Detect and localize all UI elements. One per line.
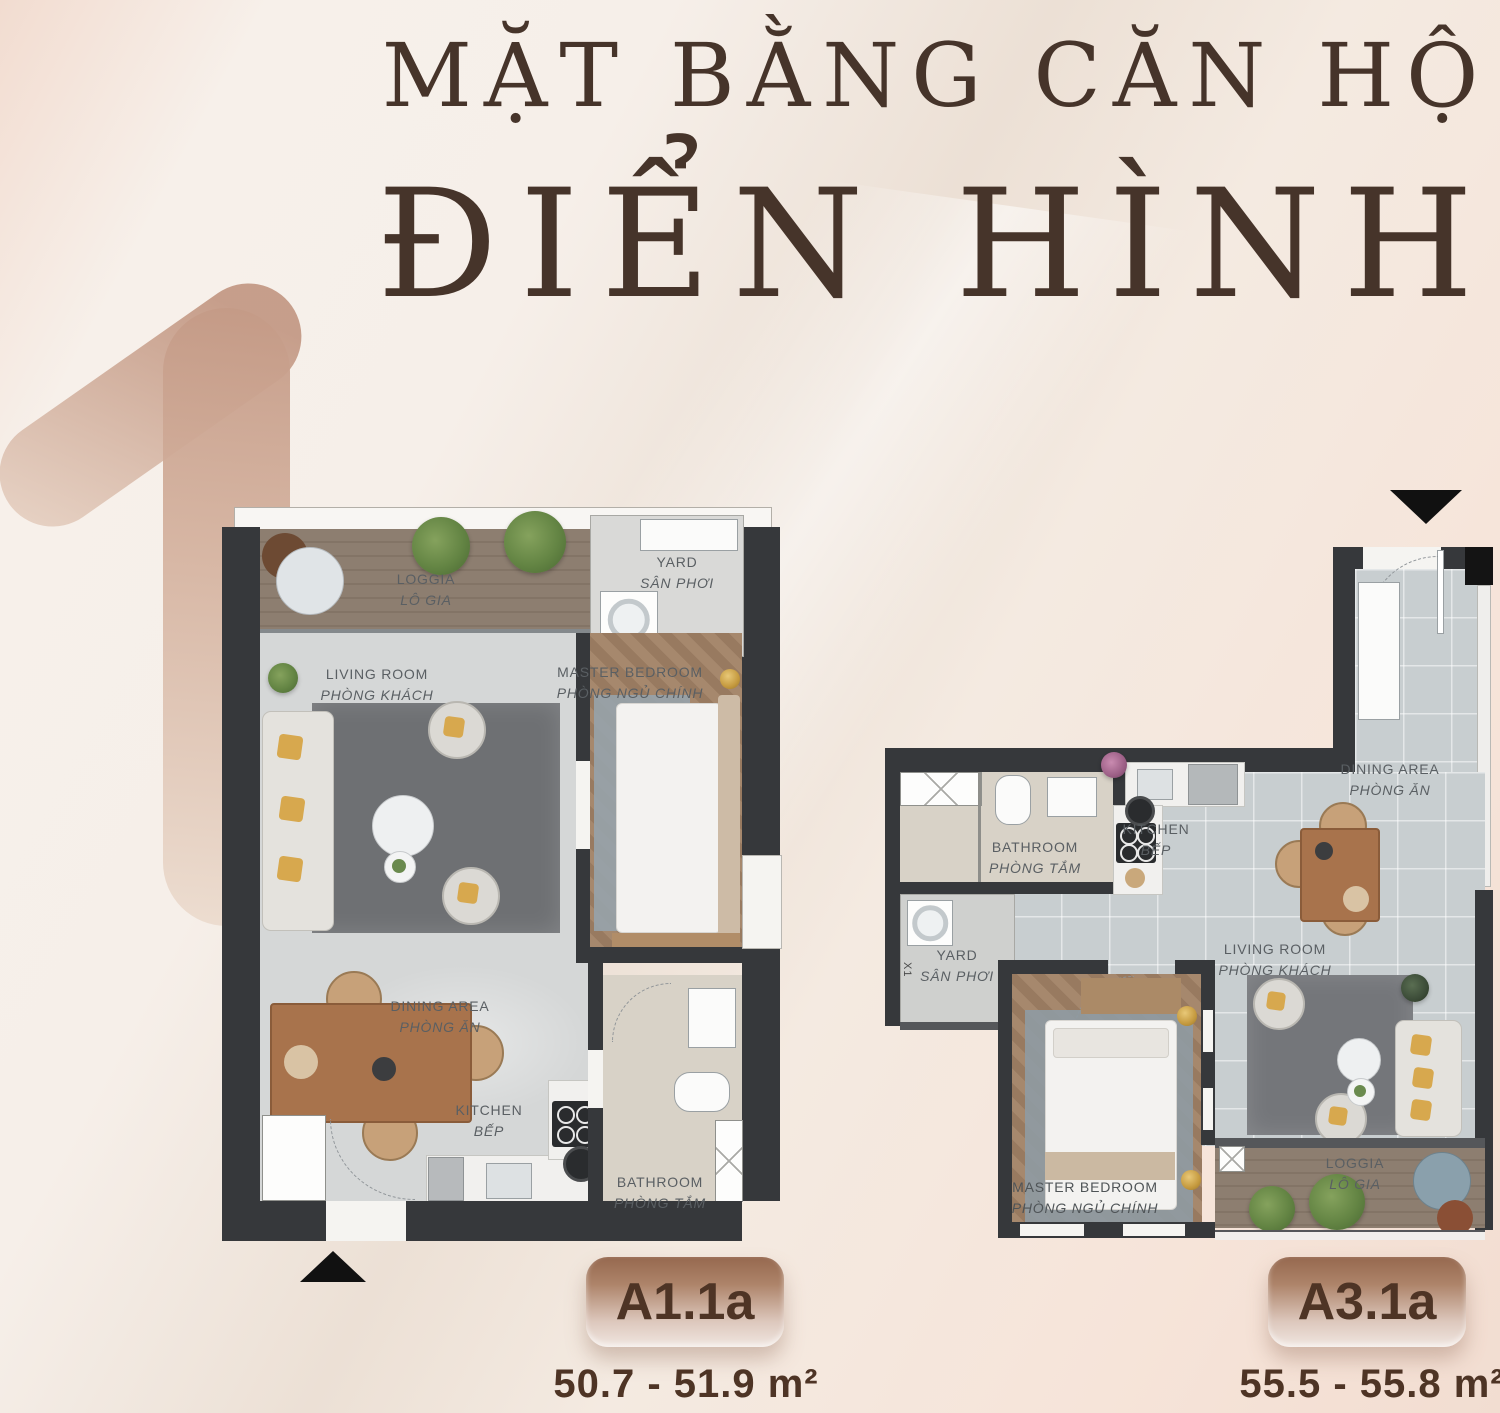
window-right	[742, 855, 782, 949]
room-label-loggia: LOGGIALÔ GIA	[1326, 1153, 1384, 1195]
room-label-kitchen: KITCHENBẾP	[455, 1100, 522, 1142]
plate-icon	[1125, 868, 1145, 888]
room-label-loggia: LOGGIALÔ GIA	[397, 569, 455, 611]
room-label-yard: YARDSÂN PHƠI	[920, 945, 994, 987]
left-wall	[885, 748, 900, 1026]
toilet-icon	[674, 1072, 730, 1112]
bed-throw	[1045, 1152, 1175, 1180]
loggia-round-table	[276, 547, 344, 615]
bathroom-closet	[715, 1120, 743, 1202]
armchair-cushion	[1266, 991, 1286, 1011]
bed-pillows	[1053, 1028, 1169, 1058]
bathroom-sink	[688, 988, 736, 1048]
bottom-window	[1123, 1224, 1185, 1236]
nightstand-lamp-icon	[1181, 1170, 1201, 1190]
flower-vase-icon	[1101, 752, 1127, 778]
poster-title-line1: MẶT BẰNG CĂN HỘ	[375, 20, 1497, 133]
bottom-window	[1020, 1224, 1084, 1236]
room-label-master-bedroom: MASTER BEDROOMPHÒNG NGỦ CHÍNH	[557, 662, 704, 704]
floor-plan-a31a: X1	[885, 490, 1493, 1248]
loggia-rail	[1215, 1230, 1485, 1240]
dining-bowl	[372, 1057, 396, 1081]
room-label-yard: YARDSÂN PHƠI	[640, 552, 714, 594]
room-label-living-room: LIVING ROOMPHÒNG KHÁCH	[1218, 939, 1331, 981]
armchair-cushion	[1328, 1106, 1348, 1126]
yard-bottom-edge	[900, 1022, 1013, 1030]
armchair-cushion	[443, 716, 466, 739]
table-plant-icon	[1354, 1085, 1366, 1097]
dishwasher	[428, 1157, 464, 1201]
ac-ledge-box	[1219, 1146, 1245, 1172]
unit-badge-a31a: A3.1a	[1268, 1257, 1466, 1347]
dining-bowl	[1315, 842, 1333, 860]
loggia-plant-icon	[412, 517, 470, 575]
nightstand-lamp-icon	[720, 669, 740, 689]
sofa-pillow	[1410, 1099, 1433, 1122]
toilet-icon	[995, 775, 1031, 825]
entry-arrow-down	[1390, 490, 1462, 524]
dining-plate	[1343, 886, 1369, 912]
bedroom-door-gap	[576, 761, 590, 849]
sofa-pillow	[278, 795, 305, 822]
floor-plan-a11a: LOGGIALÔ GIA YARDSÂN PHƠI LIVING ROOMPHÒ…	[222, 505, 780, 1247]
sofa-pillow	[1412, 1067, 1435, 1090]
room-label-kitchen: KITCHENBẾP	[1122, 819, 1189, 861]
corner-plant-icon	[1401, 974, 1429, 1002]
sofa-pillow	[276, 733, 303, 760]
room-label-living-room: LIVING ROOMPHÒNG KHÁCH	[320, 664, 433, 706]
room-label-master-bedroom: MASTER BEDROOMPHÒNG NGỦ CHÍNH	[1012, 1177, 1159, 1219]
room-label-bathroom: BATHROOMPHÒNG TẮM	[614, 1172, 706, 1214]
bedroom-top-wall	[998, 960, 1108, 974]
arm-corner-block	[1465, 547, 1493, 585]
dining-table	[1300, 828, 1380, 922]
shower-partition	[978, 772, 981, 882]
bathroom-sink	[1047, 777, 1097, 817]
loggia-palm-icon	[504, 511, 566, 573]
washing-machine-icon	[907, 900, 953, 946]
nightstand-lamp-icon	[1177, 1006, 1197, 1026]
sofa-pillow	[1410, 1034, 1433, 1057]
bedroom-console	[1081, 978, 1181, 1014]
bathroom-bottom-wall	[900, 882, 1113, 894]
dining-plate	[284, 1045, 318, 1079]
table-plant-icon	[392, 859, 406, 873]
kitchen-sink	[486, 1163, 532, 1199]
room-label-dining-area: DINING AREAPHÒNG ĂN	[390, 996, 489, 1038]
fridge	[1188, 764, 1238, 805]
unit-area-a31a: 55.5 - 55.8 m²	[1222, 1362, 1500, 1407]
coffee-table	[372, 795, 434, 857]
poster-title-line2: ĐIỂN HÌNH	[375, 152, 1497, 340]
coffee-table	[1337, 1038, 1381, 1082]
yard-counter	[640, 519, 738, 551]
armchair-cushion	[457, 882, 480, 905]
entry-door-leaf	[1437, 550, 1444, 634]
bathroom-door-gap	[588, 1050, 603, 1108]
floor-plan-poster: { "title": { "line1": "MẶT BẰNG CĂN HỘ",…	[0, 0, 1500, 1413]
bedroom-window	[1203, 1088, 1213, 1130]
room-label-bathroom: BATHROOMPHÒNG TẮM	[989, 837, 1081, 879]
hall-closet	[1358, 582, 1400, 720]
bed	[616, 703, 722, 933]
bedroom-bathroom-wall	[576, 947, 742, 963]
arm-left-wall	[1333, 547, 1355, 773]
shower-box	[900, 772, 982, 806]
unit-badge-a11a: A1.1a	[586, 1257, 784, 1347]
loggia-wall	[1215, 1138, 1485, 1148]
corner-plant-icon	[268, 663, 298, 693]
bedroom-left-wall	[998, 960, 1012, 1238]
entry-closet	[262, 1115, 326, 1201]
wall-left	[222, 527, 260, 1241]
bed-headboard	[718, 695, 740, 939]
room-label-dining-area: DINING AREAPHÒNG ĂN	[1340, 759, 1439, 801]
bedroom-window	[1203, 1010, 1213, 1052]
unit-area-a11a: 50.7 - 51.9 m²	[536, 1362, 836, 1407]
entry-door-gap	[326, 1201, 406, 1241]
sofa-pillow	[276, 855, 303, 882]
loggia-plant-icon	[1249, 1186, 1295, 1232]
entry-arrow-up	[300, 1251, 366, 1282]
shaft-label: X1	[903, 962, 913, 1010]
